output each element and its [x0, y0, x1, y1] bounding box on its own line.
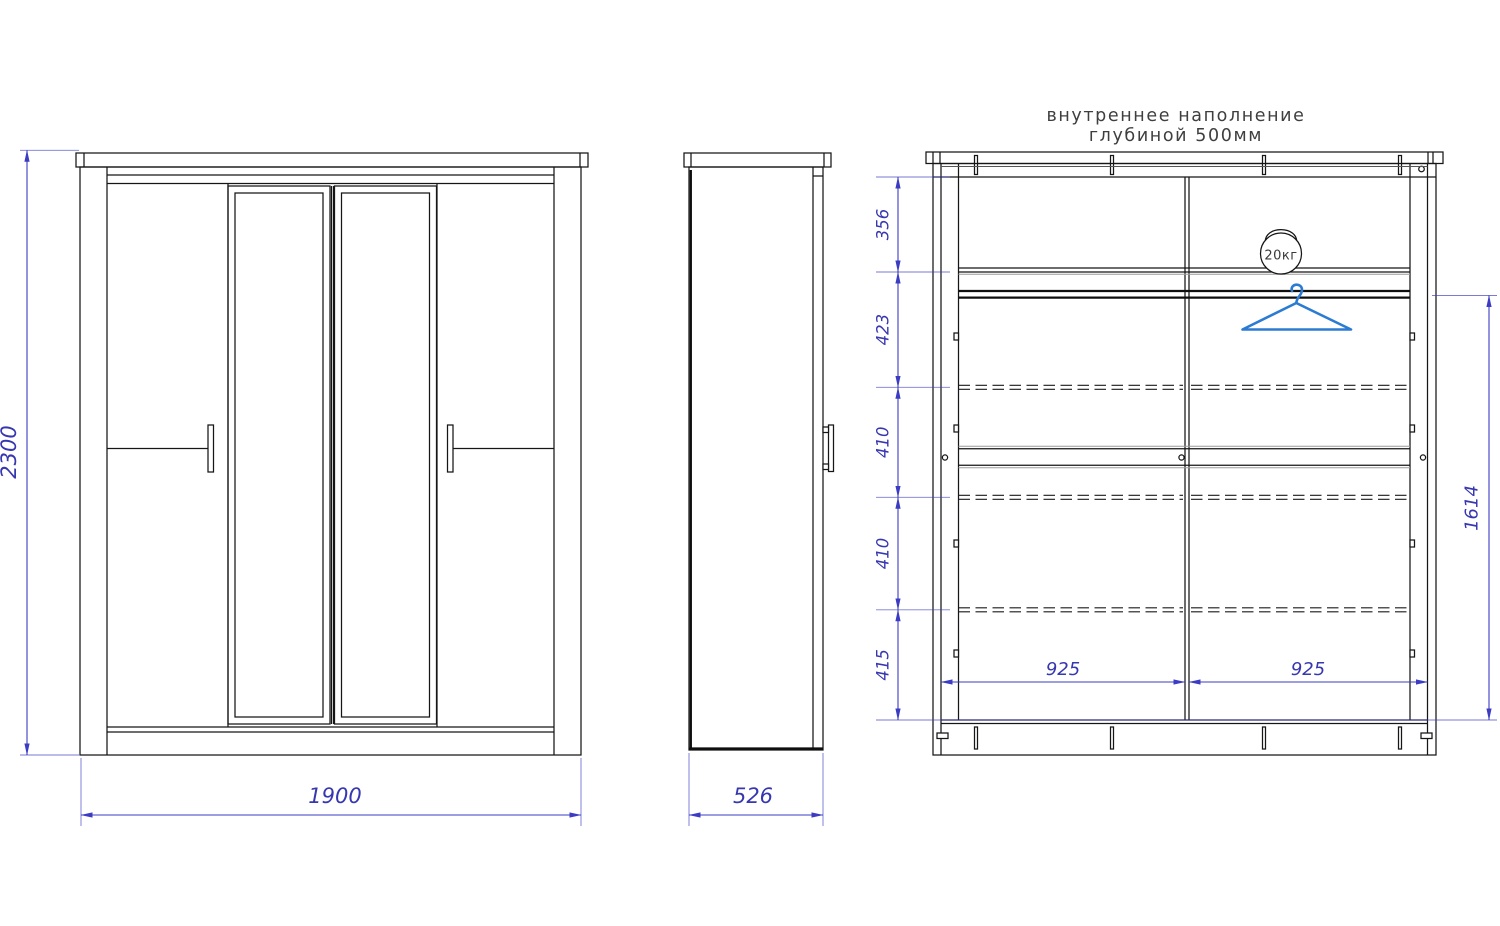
- front-height-dimension: 2300: [0, 150, 79, 755]
- top-shelf: [959, 268, 1411, 274]
- optional-shelf-dashed-1: [959, 385, 1411, 389]
- front-width-dimension: 1900: [81, 758, 581, 826]
- front-door-right: [437, 184, 554, 728]
- internal-top-dowels: [975, 156, 1402, 175]
- optional-shelf-dashed-3: [959, 608, 1411, 612]
- section-label-2: 423: [874, 314, 893, 346]
- wardrobe-technical-drawing: 2300 1900 526 внутреннее: [0, 0, 1500, 926]
- section-label-5: 415: [874, 649, 893, 681]
- hanging-rod: [959, 291, 1411, 298]
- max-load-label: 20кг: [1264, 249, 1297, 264]
- front-height-label: 2300: [0, 425, 21, 478]
- section-label-4: 410: [874, 538, 893, 570]
- rod-height-dimension: 1614: [1432, 296, 1497, 721]
- side-view: [684, 153, 834, 750]
- side-body: [689, 167, 823, 750]
- fixed-middle-shelf: [942, 446, 1425, 468]
- left-door-handle: [208, 425, 214, 472]
- shelf-screw-hole: [942, 455, 947, 460]
- drawing-svg: 2300 1900 526 внутреннее: [0, 0, 1500, 926]
- side-cornice: [684, 153, 831, 167]
- drawing-title-line1: внутреннее наполнение: [1046, 106, 1305, 126]
- front-center-gap: [332, 186, 334, 724]
- front-width-label: 1900: [308, 784, 361, 808]
- section-label-1: 356: [874, 209, 893, 241]
- shelf-screw-hole: [1420, 455, 1425, 460]
- side-depth-dimension: 526: [689, 753, 823, 826]
- side-door-handle: [823, 425, 834, 472]
- front-cornice: [76, 153, 588, 167]
- rod-height-label: 1614: [1462, 485, 1483, 531]
- right-door-handle: [448, 425, 454, 472]
- right-compartment-width-label: 925: [1291, 659, 1325, 680]
- drawing-title-line2: глубиной 500мм: [1089, 126, 1263, 146]
- front-door-mirror-right: [335, 186, 437, 724]
- compartment-width-dimensions: 925 925: [941, 659, 1428, 682]
- left-compartment-width-label: 925: [1046, 659, 1080, 680]
- front-view: [76, 153, 588, 755]
- section-label-3: 410: [874, 427, 893, 459]
- shelf-screw-hole: [1179, 455, 1184, 460]
- weight-icon: 20кг: [1261, 230, 1302, 274]
- cornice-screw-hole: [1419, 166, 1425, 172]
- front-door-mirror-left: [228, 186, 330, 724]
- internal-view: 20кг: [926, 152, 1443, 755]
- internal-cornice: [926, 152, 1443, 172]
- internal-bottom-dowels: [937, 727, 1432, 749]
- side-depth-label: 526: [733, 784, 773, 808]
- optional-shelf-dashed-2: [959, 495, 1411, 499]
